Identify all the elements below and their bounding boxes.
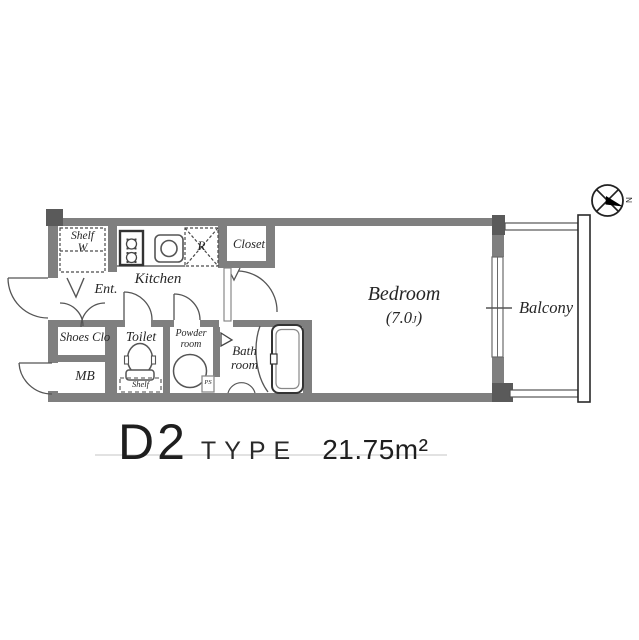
- stove-icon: [120, 231, 143, 265]
- powder-room-label: Powder room: [168, 329, 214, 351]
- compass-north-label: N: [624, 197, 633, 203]
- compass-icon: N: [592, 185, 633, 216]
- closet-label: Closet: [224, 238, 274, 252]
- plan-type-name: D2: [118, 413, 188, 471]
- bedroom-doorway: [224, 268, 231, 321]
- powder-room-door-swing: [174, 294, 200, 320]
- toilet-icon: [125, 344, 156, 381]
- pipe-space-label: PS: [200, 379, 216, 386]
- bathtub-icon: [271, 325, 304, 393]
- bedroom-label: Bedroom (7.0J): [304, 281, 504, 328]
- shoes-closet-label: Shoes Clo: [52, 331, 118, 345]
- meter-box-door-swing: [19, 363, 52, 394]
- kitchen-label: Kitchen: [118, 271, 198, 287]
- bath-door-arc: [228, 383, 255, 393]
- plan-caption: D2 TYPE 21.75m²: [118, 413, 428, 471]
- shelf-w-label: Shelf W: [60, 230, 105, 255]
- plan-area: 21.75m²: [322, 434, 428, 466]
- entrance-label: Ent.: [82, 282, 130, 297]
- refrigerator-label: R: [185, 239, 218, 253]
- meter-box-label: MB: [60, 369, 110, 384]
- toilet-label: Toilet: [114, 330, 168, 345]
- toilet-shelf-label: Shelf: [120, 380, 161, 389]
- entrance-door-swing: [8, 278, 48, 318]
- sink-icon: [155, 235, 183, 262]
- plan-type-word: TYPE: [201, 437, 298, 466]
- bath-room-label: Bath room: [218, 344, 271, 372]
- closet-door-swing: [228, 268, 277, 312]
- balcony-label: Balcony: [506, 299, 586, 317]
- bedroom-name: Bedroom: [304, 281, 504, 307]
- floor-plan: N Shelf W R Closet Kitchen Ent. Shoes Cl…: [0, 0, 639, 640]
- bedroom-size: (7.0J): [304, 307, 504, 328]
